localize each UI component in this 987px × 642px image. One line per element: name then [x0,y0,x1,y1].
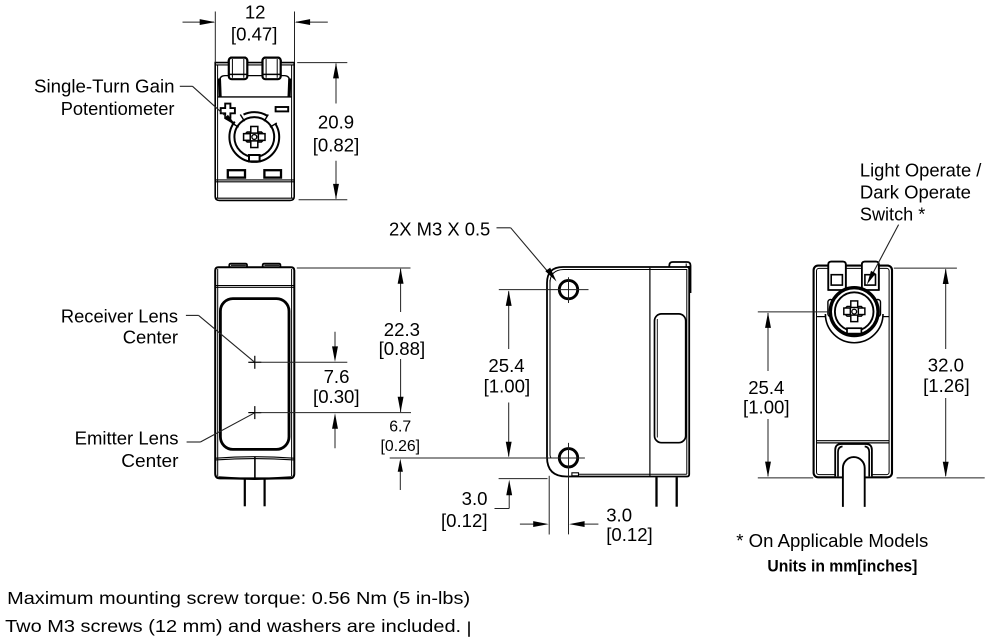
svg-text:12: 12 [245,2,266,23]
svg-text:6.7: 6.7 [389,419,411,436]
svg-text:7.6: 7.6 [324,366,350,387]
svg-text:Single-Turn Gain: Single-Turn Gain [34,75,175,96]
svg-text:32.0: 32.0 [928,354,964,375]
svg-text:Maximum mounting screw torque:: Maximum mounting screw torque: 0.56 Nm (… [7,588,470,608]
svg-text:3.0: 3.0 [462,488,488,509]
svg-text:[1.26]: [1.26] [923,375,970,396]
svg-text:[0.82]: [0.82] [313,134,360,155]
svg-text:Units in mm[inches]: Units in mm[inches] [767,557,917,576]
svg-text:Dark Operate: Dark Operate [860,182,971,203]
svg-text:Center: Center [121,450,178,471]
svg-text:[0.26]: [0.26] [381,438,421,455]
svg-text:25.4: 25.4 [488,355,524,376]
svg-text:22.3: 22.3 [384,319,420,340]
svg-text:[1.00]: [1.00] [743,397,790,418]
svg-text:* On Applicable Models: * On Applicable Models [736,530,928,551]
svg-text:Potentiometer: Potentiometer [61,98,175,119]
svg-text:Receiver Lens: Receiver Lens [61,305,178,326]
svg-text:Switch *: Switch * [860,204,925,225]
svg-text:[0.88]: [0.88] [379,338,426,359]
svg-text:25.4: 25.4 [748,377,784,398]
svg-text:3.0: 3.0 [606,504,632,525]
svg-text:[0.30]: [0.30] [313,386,360,407]
svg-text:[0.12]: [0.12] [606,524,653,545]
svg-text:Two M3 screws (12 mm) and wash: Two M3 screws (12 mm) and washers are in… [5,616,461,636]
svg-text:20.9: 20.9 [318,112,354,133]
svg-text:Light Operate /: Light Operate / [860,160,982,181]
svg-text:[0.47]: [0.47] [231,23,278,44]
svg-text:Emitter Lens: Emitter Lens [75,427,179,448]
svg-text:[1.00]: [1.00] [484,375,531,396]
svg-text:2X M3 X 0.5: 2X M3 X 0.5 [389,218,490,239]
svg-text:Center: Center [123,326,178,347]
svg-text:[0.12]: [0.12] [441,510,488,531]
